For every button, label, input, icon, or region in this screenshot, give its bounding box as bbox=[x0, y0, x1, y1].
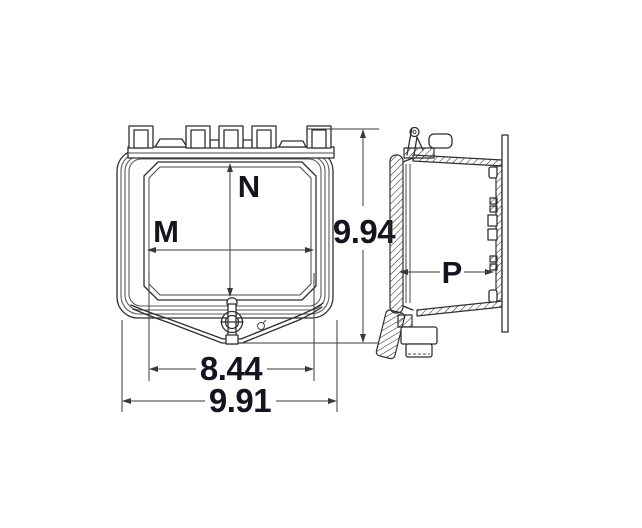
dim-label-m: M bbox=[153, 214, 179, 249]
dimension-height: 9.94 bbox=[241, 129, 396, 343]
dim-value-overall-width: 9.91 bbox=[209, 382, 271, 419]
side-view: P bbox=[375, 128, 508, 360]
dim-label-n: N bbox=[238, 169, 260, 204]
hinge-tab bbox=[129, 126, 153, 148]
side-hinge bbox=[404, 128, 452, 159]
dim-label-p: P bbox=[442, 255, 463, 290]
technical-drawing: N M 9.94 8.44 9.91 bbox=[0, 0, 642, 528]
hinge-knuckles bbox=[128, 126, 334, 158]
latch-knob bbox=[221, 298, 243, 344]
hinge-tab bbox=[219, 126, 243, 148]
side-lid-edge bbox=[390, 155, 413, 313]
front-view: N M bbox=[117, 126, 334, 344]
dimension-p: P bbox=[399, 255, 494, 290]
latch-keyhole bbox=[258, 320, 267, 330]
hinge-tab bbox=[252, 126, 276, 148]
side-latch bbox=[375, 309, 437, 359]
hinge-tab bbox=[186, 126, 210, 148]
dimension-n: N bbox=[227, 163, 260, 297]
mounting-flange bbox=[502, 135, 508, 332]
drawing-canvas: N M 9.94 8.44 9.91 bbox=[0, 0, 642, 528]
dim-value-height: 9.94 bbox=[333, 213, 396, 250]
